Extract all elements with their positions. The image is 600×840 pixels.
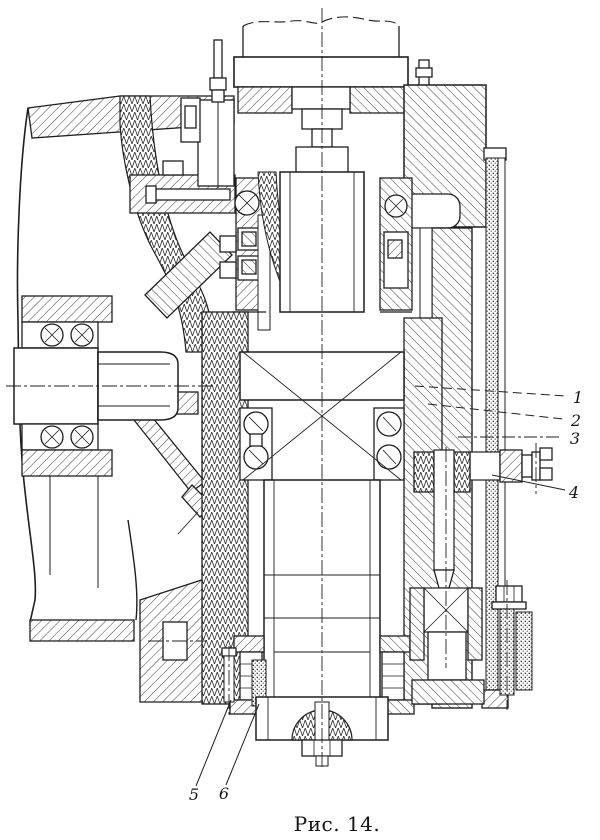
- upper-spindle-cluster: [220, 172, 412, 330]
- callout-5: 5: [189, 785, 199, 804]
- callout-6: 6: [219, 784, 229, 803]
- oil-union-fitting: [470, 448, 552, 482]
- callout-2: 2: [570, 411, 581, 430]
- motor-and-flange: [210, 17, 432, 188]
- callout-1: 1: [573, 388, 583, 407]
- figure-page: 1 2 3 4 5 6 Рис. 14.: [0, 0, 600, 840]
- callout-4: 4: [568, 483, 579, 502]
- callout-3: 3: [570, 429, 580, 448]
- sectional-assembly-drawing: 1 2 3 4 5 6: [0, 0, 600, 840]
- figure-caption: Рис. 14.: [262, 812, 412, 836]
